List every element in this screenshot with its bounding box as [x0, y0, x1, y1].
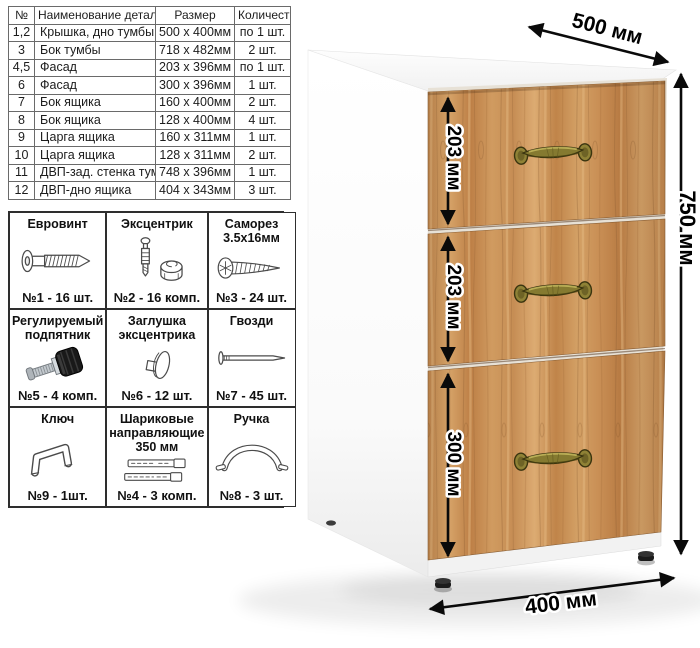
table-row: 7 Бок ящика 160 x 400мм 2 шт.	[9, 94, 291, 112]
drawer-slides-icon	[116, 454, 198, 488]
hardware-cell-gvozdi: Гвозди №7 - 45 шт.	[208, 309, 296, 407]
part-size-cell: 128 x 311мм	[156, 147, 235, 165]
part-qty-cell: 1 шт.	[235, 77, 291, 95]
hardware-qty: №2 - 16 комп.	[114, 290, 201, 305]
parts-table: № Наименование детали Размер Количество …	[8, 6, 291, 200]
part-size-cell: 500 x 400мм	[156, 24, 235, 42]
hardware-qty: №4 - 3 комп.	[117, 488, 196, 503]
hardware-cell-ruchka: Ручка №8 - 3 шт.	[208, 407, 296, 507]
self-tapping-screw-icon	[211, 247, 293, 289]
part-qty-cell: 2 шт.	[235, 147, 291, 165]
part-number-cell: 7	[9, 94, 35, 112]
col-header-quantity: Количество	[235, 7, 291, 25]
hardware-qty: №6 - 12 шт.	[121, 388, 192, 403]
part-number-cell: 6	[9, 77, 35, 95]
hardware-label: Регулируемый подпятник	[12, 314, 103, 342]
part-number-cell: 10	[9, 147, 35, 165]
part-qty-cell: по 1 шт.	[235, 59, 291, 77]
hardware-label: Ручка	[234, 412, 270, 426]
part-number-cell: 12	[9, 182, 35, 200]
table-row: 10 Царга ящика 128 x 311мм 2 шт.	[9, 147, 291, 165]
hardware-cell-excentric: Эксцентрик №2 - 16 комп.	[106, 212, 207, 309]
part-qty-cell: 2 шт.	[235, 42, 291, 60]
part-size-cell: 748 x 396мм	[156, 164, 235, 182]
hardware-qty: №1 - 16 шт.	[22, 290, 93, 305]
part-qty-cell: 1 шт.	[235, 164, 291, 182]
part-number-cell: 8	[9, 112, 35, 130]
part-name-cell: Бок ящика	[35, 112, 156, 130]
table-row: 6 Фасад 300 x 396мм 1 шт.	[9, 77, 291, 95]
dim-label-depth: 500 мм	[570, 9, 645, 49]
cam-cover-icon	[116, 343, 198, 387]
col-header-number: №	[9, 7, 35, 25]
table-row: 3 Бок тумбы 718 x 482мм 2 шт.	[9, 42, 291, 60]
cam-lock-icon	[116, 235, 198, 287]
table-row: 1,2 Крышка, дно тумбы 500 x 400мм по 1 ш…	[9, 24, 291, 42]
dim-label-drawer-bottom: 300 мм	[443, 431, 464, 496]
part-name-cell: Царга ящика	[35, 147, 156, 165]
handle-icon	[211, 434, 293, 480]
part-size-cell: 160 x 400мм	[156, 94, 235, 112]
part-number-cell: 4,5	[9, 59, 35, 77]
part-size-cell: 300 x 396мм	[156, 77, 235, 95]
adjustable-foot-icon	[17, 342, 99, 388]
hardware-qty: №9 - 1шт.	[28, 488, 88, 503]
table-row: 9 Царга ящика 160 x 311мм 1 шт.	[9, 129, 291, 147]
part-name-cell: ДВП-зад. стенка тумбы	[35, 164, 156, 182]
hardware-qty: №7 - 45 шт.	[216, 388, 287, 403]
table-header-row: № Наименование детали Размер Количество	[9, 7, 291, 25]
euro-screw-icon	[17, 239, 99, 283]
part-name-cell: Бок ящика	[35, 94, 156, 112]
hardware-label: Гвозди	[230, 314, 274, 328]
part-number-cell: 9	[9, 129, 35, 147]
hardware-cell-napravlyayushchie: Шариковые направляющие 350 мм №4 - 3 ком…	[106, 407, 207, 507]
table-row: 4,5 Фасад 203 x 396мм по 1 шт.	[9, 59, 291, 77]
part-size-cell: 203 x 396мм	[156, 59, 235, 77]
hardware-label: Саморез 3.5х16мм	[211, 217, 293, 245]
table-row: 11 ДВП-зад. стенка тумбы 748 x 396мм 1 ш…	[9, 164, 291, 182]
part-qty-cell: 3 шт.	[235, 182, 291, 200]
hardware-cell-klyuch: Ключ №9 - 1шт.	[9, 407, 106, 507]
dim-label-drawer-middle: 203 мм	[443, 264, 464, 329]
hardware-label: Заглушка эксцентрика	[109, 314, 204, 342]
part-number-cell: 11	[9, 164, 35, 182]
hardware-label: Шариковые направляющие 350 мм	[109, 412, 204, 454]
part-qty-cell: 1 шт.	[235, 129, 291, 147]
hardware-label: Эксцентрик	[121, 217, 193, 231]
part-name-cell: Царга ящика	[35, 129, 156, 147]
part-number-cell: 1,2	[9, 24, 35, 42]
col-header-part-name: Наименование детали	[35, 7, 156, 25]
hardware-qty: №8 - 3 шт.	[220, 488, 284, 503]
assembly-sheet: 500 мм 750 мм 400 мм 203 мм 203 мм 300 м…	[0, 0, 700, 648]
part-size-cell: 718 x 482мм	[156, 42, 235, 60]
part-name-cell: Бок тумбы	[35, 42, 156, 60]
hardware-label: Евровинт	[27, 217, 87, 231]
dim-label-height: 750 мм	[675, 190, 700, 265]
hardware-label: Ключ	[41, 412, 74, 426]
hardware-qty: №5 - 4 комп.	[18, 388, 97, 403]
hardware-cell-zaglushka: Заглушка эксцентрика №6 - 12 шт.	[106, 309, 207, 407]
table-row: 8 Бок ящика 128 x 400мм 4 шт.	[9, 112, 291, 130]
floor-shadow	[238, 573, 700, 627]
part-name-cell: Крышка, дно тумбы	[35, 24, 156, 42]
hardware-grid: Евровинт №1 - 16 шт. Эксцентрик	[8, 211, 284, 508]
part-number-cell: 3	[9, 42, 35, 60]
part-qty-cell: по 1 шт.	[235, 24, 291, 42]
part-size-cell: 160 x 311мм	[156, 129, 235, 147]
table-row: 12 ДВП-дно ящика 404 x 343мм 3 шт.	[9, 182, 291, 200]
part-name-cell: ДВП-дно ящика	[35, 182, 156, 200]
hardware-cell-eurovint: Евровинт №1 - 16 шт.	[9, 212, 106, 309]
part-size-cell: 128 x 400мм	[156, 112, 235, 130]
col-header-size: Размер	[156, 7, 235, 25]
dim-label-drawer-top: 203 мм	[443, 125, 464, 190]
part-qty-cell: 4 шт.	[235, 112, 291, 130]
nail-icon	[211, 336, 293, 380]
part-qty-cell: 2 шт.	[235, 94, 291, 112]
hardware-cell-samorez: Саморез 3.5х16мм №3 - 24 шт.	[208, 212, 296, 309]
hex-key-icon	[17, 433, 99, 481]
part-name-cell: Фасад	[35, 59, 156, 77]
hardware-qty: №3 - 24 шт.	[216, 290, 287, 305]
cabinet-side-panel	[308, 50, 428, 577]
hardware-cell-podpyatnik: Регулируемый подпятник №5 - 4 комп.	[9, 309, 106, 407]
part-size-cell: 404 x 343мм	[156, 182, 235, 200]
part-name-cell: Фасад	[35, 77, 156, 95]
